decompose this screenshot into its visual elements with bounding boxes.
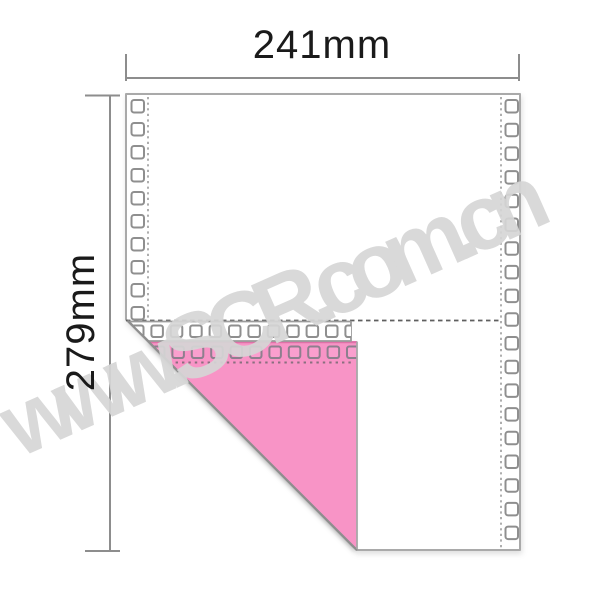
width-dimension-label: 241mm bbox=[222, 22, 422, 68]
copy-sheet-tractor-holes bbox=[153, 347, 359, 359]
folded-corner-strip bbox=[129, 322, 357, 342]
product-diagram: www.SCR.com.cn 241mm 279mm bbox=[0, 0, 600, 600]
height-dimension-label: 279mm bbox=[57, 222, 105, 422]
